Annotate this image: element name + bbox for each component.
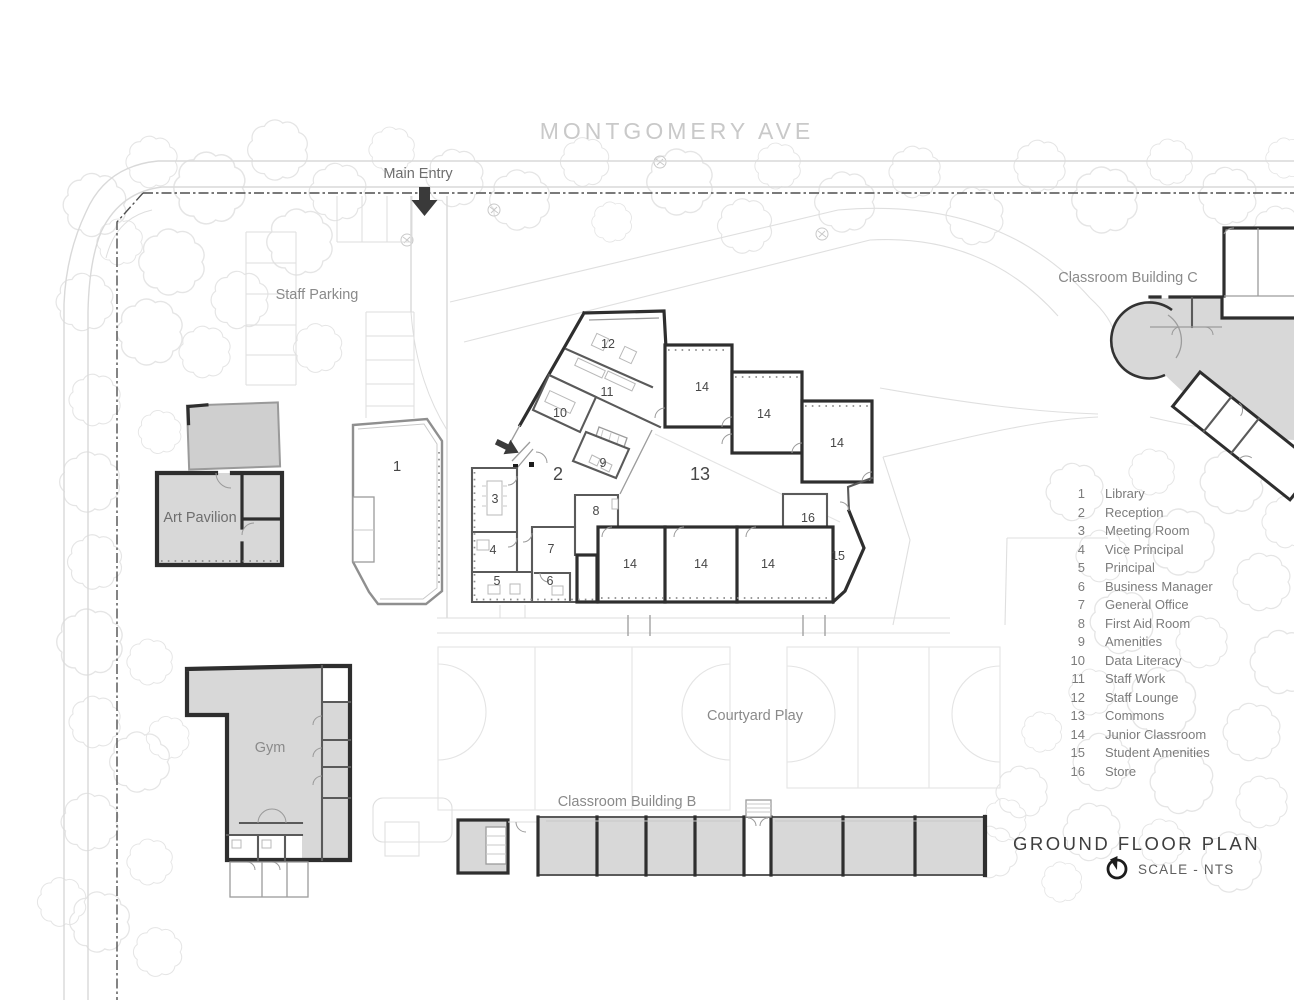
room-number-junior-classroom: 14 xyxy=(761,557,775,571)
room-number-staff-lounge: 12 xyxy=(601,337,615,351)
art-pavilion-label: Art Pavilion xyxy=(163,510,236,526)
north-arrow-icon xyxy=(1108,856,1126,878)
legend-num: 6 xyxy=(1078,579,1085,594)
legend-name: Data Literacy xyxy=(1105,653,1182,668)
drawing-title: GROUND FLOOR PLAN xyxy=(1013,833,1260,854)
legend-name: Staff Work xyxy=(1105,671,1166,686)
room-number-general-office: 7 xyxy=(548,542,555,556)
room-number-staff-work: 11 xyxy=(601,385,614,399)
legend-num: 1 xyxy=(1078,486,1085,501)
legend-num: 16 xyxy=(1071,764,1085,779)
gym-annex xyxy=(230,862,308,897)
legend-num: 15 xyxy=(1071,745,1085,760)
courtyard-play-label: Courtyard Play xyxy=(707,708,804,724)
legend-name: Amenities xyxy=(1105,634,1163,649)
legend-num: 12 xyxy=(1071,690,1085,705)
classroom-building-b xyxy=(458,800,985,875)
legend-name: Meeting Room xyxy=(1105,523,1190,538)
room-number-data-literacy: 10 xyxy=(553,406,567,420)
street-name: MONTGOMERY AVE xyxy=(540,118,815,144)
legend-num: 13 xyxy=(1071,708,1085,723)
legend-name: Principal xyxy=(1105,560,1155,575)
room-number-first-aid: 8 xyxy=(593,504,600,518)
admin-building xyxy=(472,311,872,602)
legend-name: General Office xyxy=(1105,597,1189,612)
room-number-junior-classroom: 14 xyxy=(623,557,637,571)
title-block: GROUND FLOOR PLAN SCALE - NTS xyxy=(1013,833,1260,878)
room-number-meeting-room: 3 xyxy=(492,492,499,506)
room-number-library: 1 xyxy=(393,458,401,475)
legend-name: Student Amenities xyxy=(1105,745,1210,760)
site-plan-svg: MONTGOMERY AVE Main Entry Staff Parking … xyxy=(0,0,1294,1000)
legend-num: 8 xyxy=(1078,616,1085,631)
play-courts xyxy=(438,647,1000,810)
room-number-commons: 13 xyxy=(690,464,710,484)
classroom-building-b-label: Classroom Building B xyxy=(558,794,697,810)
legend-num: 10 xyxy=(1071,653,1085,668)
room-number-vice-principal: 4 xyxy=(490,543,497,557)
legend-num: 3 xyxy=(1078,523,1085,538)
legend-num: 14 xyxy=(1071,727,1085,742)
gym-building xyxy=(187,666,350,897)
ground-floor-plan-drawing: MONTGOMERY AVE Main Entry Staff Parking … xyxy=(0,0,1294,1000)
legend-name: First Aid Room xyxy=(1105,616,1190,631)
legend-num: 11 xyxy=(1072,671,1086,686)
legend-name: Junior Classroom xyxy=(1105,727,1206,742)
gym-label: Gym xyxy=(255,740,286,756)
legend-num: 2 xyxy=(1078,505,1085,520)
room-number-junior-classroom: 14 xyxy=(695,380,709,394)
art-pavilion-building xyxy=(157,402,282,565)
room-number-business-manager: 6 xyxy=(547,574,554,588)
shrub-icon xyxy=(401,156,828,246)
room-number-store: 16 xyxy=(801,511,815,525)
building-c-north-block xyxy=(1224,228,1294,296)
legend-num: 4 xyxy=(1078,542,1085,557)
legend-name: Commons xyxy=(1105,708,1165,723)
drawing-scale: SCALE - NTS xyxy=(1138,862,1234,877)
legend-num: 5 xyxy=(1078,560,1085,575)
room-number-junior-classroom: 14 xyxy=(694,557,708,571)
legend-num: 9 xyxy=(1078,634,1085,649)
classroom-building-c-label: Classroom Building C xyxy=(1058,270,1197,286)
legend-name: Library xyxy=(1105,486,1145,501)
classroom-building-c xyxy=(1111,228,1294,500)
legend-num: 7 xyxy=(1078,597,1085,612)
room-number-junior-classroom: 14 xyxy=(757,407,771,421)
room-number-student-amenities: 15 xyxy=(831,549,845,563)
library-building xyxy=(353,419,442,604)
legend-name: Store xyxy=(1105,764,1136,779)
staff-wing xyxy=(509,311,666,478)
room-number-junior-classroom: 14 xyxy=(830,436,844,450)
room-number-reception: 2 xyxy=(553,464,563,484)
main-entry-arrow-icon xyxy=(412,187,438,216)
reception-entry-arrow-icon xyxy=(493,435,522,460)
legend-name: Reception xyxy=(1105,505,1164,520)
room-number-amenities: 9 xyxy=(600,456,607,470)
legend-name: Business Manager xyxy=(1105,579,1213,594)
staff-parking-label: Staff Parking xyxy=(276,287,359,303)
room-number-principal: 5 xyxy=(494,574,501,588)
legend-name: Staff Lounge xyxy=(1105,690,1179,705)
legend-name: Vice Principal xyxy=(1105,542,1184,557)
main-entry-label: Main Entry xyxy=(383,166,453,182)
